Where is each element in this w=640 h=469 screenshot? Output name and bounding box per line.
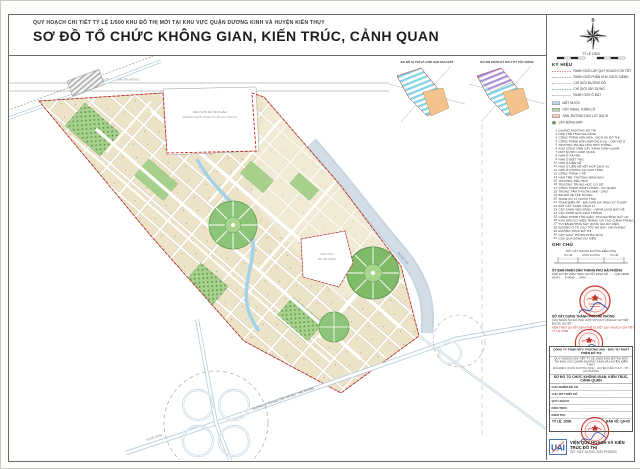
titleblock-role-value: ………………………… bbox=[583, 393, 631, 396]
legend-line-sample bbox=[552, 95, 571, 96]
approval-red-note: KÈM THEO QUYẾT ĐỊNH PHÊ DUYỆT QUY HOẠCH … bbox=[552, 326, 637, 333]
titleblock-role-row: CHỦ TRÌ THIẾT KẾ ………………………… bbox=[550, 391, 632, 398]
legend-item-number: 29 bbox=[552, 230, 557, 233]
page-title: SƠ ĐỒ TỔ CHỨC KHÔNG GIAN, KIẾN TRÚC, CẢN… bbox=[33, 28, 546, 44]
inset-location-diagram: SƠ ĐỒ VỊ TRÍ VÀ GIỚI HẠN KHU ĐẤT bbox=[389, 58, 465, 124]
legend-item-number: 25 bbox=[552, 216, 557, 219]
legend-item-number: 17 bbox=[552, 187, 557, 190]
legend-heading: KÝ HIỆU bbox=[552, 62, 572, 67]
legend-item-number: 1 bbox=[552, 129, 557, 132]
legend-line-sample bbox=[552, 77, 571, 78]
legend-line-label: CHỈ GIỚI XÂY DỰNG bbox=[574, 87, 605, 91]
project-subtitle: QUY HOẠCH CHI TIẾT TỶ LỆ 1/500 KHU ĐÔ TH… bbox=[33, 20, 546, 26]
institute-name: VIỆN QUY HOẠCH VÀ KIẾN TRÚC ĐÔ THỊ bbox=[570, 440, 631, 451]
titleblock-role-row: QUY HOẠCH ………………………… bbox=[550, 398, 632, 405]
legend-item-number: 28 bbox=[552, 226, 557, 229]
map-canvas: ĐƯỜNG PHẠM VĂN ĐỒNG SÔNG HE bbox=[9, 56, 546, 460]
legend-item-number: 23 bbox=[552, 208, 557, 211]
legend-item-number: 10 bbox=[552, 162, 557, 165]
titleblock-role: KIẾN TRÚC bbox=[552, 407, 583, 410]
approval-ubnd-sub: PHÊ DUYỆT KÈM THEO QUYẾT ĐỊNH SỐ ……/QĐ-U… bbox=[552, 273, 637, 280]
legend-area-swatch bbox=[552, 115, 560, 119]
legend-area-row: CÂY BÓNG MÁT bbox=[552, 120, 638, 127]
legend-line-label: RANH GIỚI PHÂN KHU CHỨC NĂNG bbox=[574, 75, 629, 79]
plan-sheet: QUY HOẠCH CHI TIẾT TỶ LỆ 1/500 KHU ĐÔ TH… bbox=[0, 0, 640, 469]
titleblock-role-table: CHỦ NHIỆM ĐỒ ÁN ………………………… CHỦ TRÌ THIẾT… bbox=[550, 384, 632, 419]
approval-sxd-sub: XÁC NHẬN SƠ ĐỒ PHÙ HỢP VỚI QUY HOẠCH CHI… bbox=[552, 319, 637, 326]
titleblock-role-value: ………………………… bbox=[583, 414, 631, 417]
legend-line-sample bbox=[552, 83, 571, 84]
legend-item-number: 19 bbox=[552, 194, 557, 197]
legend-area-label: CÂY BÓNG MÁT bbox=[559, 121, 583, 125]
titleblock-strip: TỶ LỆ: 1/500 BẢN VẼ: QH-05 bbox=[550, 419, 632, 425]
legend-item-number: 24 bbox=[552, 212, 557, 215]
round-park-small bbox=[209, 201, 257, 249]
legend-area-swatch bbox=[552, 108, 560, 112]
titleblock-role: CHỦ TRÌ THIẾT KẾ bbox=[552, 393, 583, 396]
titleblock-role-row: KIẾN TRÚC ………………………… bbox=[550, 405, 632, 412]
legend-item-number: 20 bbox=[552, 198, 557, 201]
titleblock-role-row: KIỂM TRA ………………………… bbox=[550, 412, 632, 419]
legend-area-label: CÂY XANH, THẢM CỎ bbox=[563, 108, 596, 112]
master-plan-map: ĐƯỜNG PHẠM VĂN ĐỒNG SÔNG HE bbox=[9, 56, 546, 460]
legend-area-swatch bbox=[552, 102, 560, 106]
legend-line-sample bbox=[552, 71, 571, 72]
notes-heading: GHI CHÚ bbox=[552, 242, 573, 247]
title-block: CÔNG TY TNHH MTV THƯƠNG MẠI - ĐẦU TƯ PHÁ… bbox=[549, 346, 633, 432]
inset-right-title: SƠ ĐỒ PHÂN KỲ ĐẦU TƯ XÂY DỰNG bbox=[480, 59, 534, 64]
legend-item-number: 18 bbox=[552, 190, 557, 193]
compass-rose: B bbox=[571, 16, 615, 56]
round-park-third bbox=[319, 312, 349, 342]
excluded-mid-label-2: DỰ ÁN KHÁC bbox=[318, 257, 336, 261]
titleblock-scale-value: 1/500 bbox=[563, 420, 571, 424]
legend-item-number: 5 bbox=[552, 144, 557, 147]
approval-block-sxd: SỞ XÂY DỰNG THÀNH PHỐ HẢI PHÒNG XÁC NHẬN… bbox=[552, 315, 638, 334]
legend-line-label: RANH GIỚI LẬP QUY HOẠCH CHI TIẾT bbox=[574, 69, 632, 73]
titleblock-role-value: ………………………… bbox=[583, 400, 631, 403]
legend-item-number: 30 bbox=[552, 234, 557, 237]
signature-scribble bbox=[579, 302, 608, 313]
legend-item-number: 31 bbox=[552, 237, 557, 240]
legend-line-label: CHỈ GIỚI ĐƯỜNG ĐỎ bbox=[574, 81, 607, 85]
titleblock-location: ĐỊA ĐIỂM: QUẬN DƯƠNG KINH - HUYỆN KIẾN T… bbox=[552, 367, 631, 373]
legend-item-number: 9 bbox=[552, 158, 557, 161]
institute-sub: SỞ XÂY DỰNG HẢI PHÒNG bbox=[570, 450, 631, 454]
road-section-sketch: MẶT CẮT NGANG ĐƯỜNG ĐIỂN HÌNH VỈA HÈ LÒN… bbox=[550, 248, 632, 268]
titleblock-role: CHỦ NHIỆM ĐỒ ÁN bbox=[552, 386, 583, 389]
approval-block-ubnd: ỦY BAN NHÂN DÂN THÀNH PHỐ HẢI PHÒNG PHÊ … bbox=[552, 269, 638, 280]
titleblock-sheet-label: BẢN VẼ bbox=[606, 420, 618, 424]
section-caption: MẶT CẮT NGANG ĐƯỜNG ĐIỂN HÌNH bbox=[566, 248, 616, 253]
side-panel: B TỶ LỆ 1/500 KÝ HIỆ bbox=[547, 15, 634, 460]
legend-item-number: 26 bbox=[552, 219, 557, 222]
titleblock-scale-label: TỶ LỆ bbox=[552, 420, 561, 424]
titleblock-drawing-name: SƠ ĐỒ TỔ CHỨC KHÔNG GIAN, KIẾN TRÚC, CẢN… bbox=[550, 375, 632, 385]
legend-item-number: 16 bbox=[552, 183, 557, 186]
excluded-parcel-top: KHU VỰC DỰ ÁN KHÁC (KHÔNG THUỘC PHẠM VI … bbox=[163, 87, 259, 155]
round-park-large bbox=[347, 247, 399, 299]
titleblock-sheet-value: QH-05 bbox=[620, 420, 630, 424]
legend-item-number: 27 bbox=[552, 223, 557, 226]
legend-item-number: 11 bbox=[552, 165, 557, 168]
legend-item-label: CẦU QUA SÔNG DỰ KIẾN bbox=[559, 237, 597, 241]
institute-logo: UAI bbox=[549, 439, 567, 455]
compass-north-label: B bbox=[591, 17, 594, 22]
legend-item-number: 14 bbox=[552, 176, 557, 179]
titleblock-company: CÔNG TY TNHH MTV THƯƠNG MẠI - ĐẦU TƯ PHÁ… bbox=[550, 347, 632, 357]
legend-line-row: RANH GIỚI Ô ĐẤT bbox=[552, 92, 638, 98]
legend-item-number: 4 bbox=[552, 140, 557, 143]
scale-label: TỶ LỆ 1/500 bbox=[582, 51, 600, 56]
legend-item-number: 6 bbox=[552, 147, 557, 150]
excluded-top-label-1: KHU VỰC DỰ ÁN KHÁC bbox=[193, 110, 227, 114]
legend-line-label: RANH GIỚI Ô ĐẤT bbox=[574, 93, 602, 97]
legend-item-number: 21 bbox=[552, 201, 557, 204]
legend-area-swatch bbox=[552, 121, 556, 125]
legend-item-number: 8 bbox=[552, 154, 557, 157]
institute-row: UAI VIỆN QUY HOẠCH VÀ KIẾN TRÚC ĐÔ THỊ S… bbox=[549, 438, 631, 456]
legend-item-number: 22 bbox=[552, 205, 557, 208]
legend-item-number: 2 bbox=[552, 133, 557, 136]
titleblock-role-row: CHỦ NHIỆM ĐỒ ÁN ………………………… bbox=[550, 384, 632, 391]
legend-item-number: 15 bbox=[552, 180, 557, 183]
titleblock-role-value: ………………………… bbox=[583, 386, 631, 389]
legend-item-row: 31 CẦU QUA SÔNG DỰ KIẾN bbox=[552, 237, 638, 241]
legend-item-number: 7 bbox=[552, 151, 557, 154]
titleblock-role: KIỂM TRA bbox=[552, 414, 583, 417]
title-band: QUY HOẠCH CHI TIẾT TỶ LỆ 1/500 KHU ĐÔ TH… bbox=[9, 15, 546, 56]
excluded-mid-label-1: KHU VỰC bbox=[321, 252, 334, 256]
legend-line-sample bbox=[552, 89, 571, 90]
legend-item-number: 12 bbox=[552, 169, 557, 172]
legend-area-label: MẶT NƯỚC bbox=[563, 102, 581, 106]
legend-area-list: MẶT NƯỚC CÂY XANH, THẢM CỎ SÂN, ĐƯỜNG DẠ… bbox=[552, 100, 638, 126]
titleblock-project: QUY HOẠCH CHI TIẾT TỶ LỆ 1/500 KHU ĐÔ TH… bbox=[552, 358, 631, 367]
expressway-label: ĐƯỜNG Ô TÔ CAO TỐC HÀ NỘI - HẢI PHÒNG bbox=[252, 385, 316, 411]
legend-item-number: 13 bbox=[552, 172, 557, 175]
legend-item-list: 1 QUẢNG TRƯỜNG ĐÔ THỊ 2 NHÀ THỂ THAO ĐA … bbox=[552, 129, 638, 240]
titleblock-role-value: ………………………… bbox=[583, 407, 631, 410]
titleblock-role: QUY HOẠCH bbox=[552, 400, 583, 403]
panel-divider bbox=[546, 15, 547, 460]
legend-area-label: SÂN, ĐƯỜNG DẠO LÁT GẠCH bbox=[563, 115, 609, 119]
legend-item-number: 3 bbox=[552, 136, 557, 139]
inset-phasing-diagram: SƠ ĐỒ PHÂN KỲ ĐẦU TƯ XÂY DỰNG bbox=[469, 58, 545, 124]
legend-line-list: RANH GIỚI LẬP QUY HOẠCH CHI TIẾT RANH GI… bbox=[552, 68, 638, 98]
inset-left-title: SƠ ĐỒ VỊ TRÍ VÀ GIỚI HẠN KHU ĐẤT bbox=[400, 59, 453, 64]
